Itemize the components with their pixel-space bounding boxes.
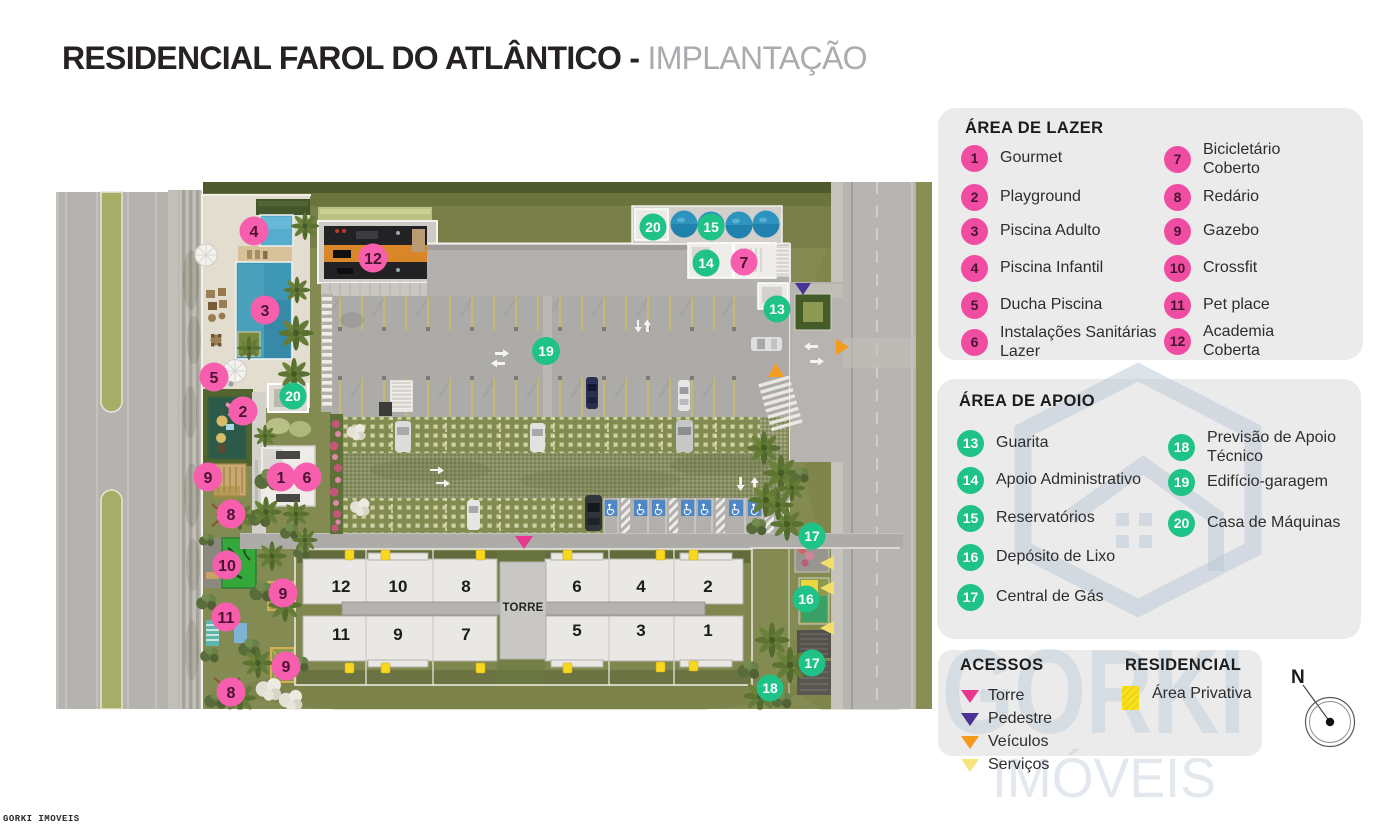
svg-text:10: 10 (389, 577, 408, 596)
svg-text:9: 9 (282, 659, 291, 676)
svg-text:3: 3 (261, 303, 270, 320)
svg-text:11: 11 (332, 625, 350, 644)
svg-text:6: 6 (303, 470, 312, 487)
svg-text:8: 8 (461, 577, 470, 596)
svg-text:2: 2 (239, 404, 248, 421)
svg-text:10: 10 (218, 558, 236, 575)
svg-text:14: 14 (698, 255, 714, 271)
svg-text:16: 16 (798, 591, 814, 607)
svg-text:12: 12 (332, 577, 351, 596)
svg-text:9: 9 (279, 586, 288, 603)
svg-text:2: 2 (703, 577, 712, 596)
svg-text:11: 11 (218, 610, 235, 627)
svg-text:N: N (1291, 667, 1305, 688)
svg-text:7: 7 (461, 625, 470, 644)
svg-text:17: 17 (804, 655, 820, 671)
svg-text:17: 17 (804, 528, 820, 544)
svg-text:1: 1 (277, 470, 286, 487)
svg-text:20: 20 (285, 388, 301, 404)
svg-text:6: 6 (572, 577, 581, 596)
svg-text:8: 8 (227, 685, 236, 702)
svg-text:20: 20 (645, 219, 661, 235)
svg-text:TORRE: TORRE (502, 602, 543, 614)
svg-text:1: 1 (703, 621, 712, 640)
svg-text:IMÓVEIS: IMÓVEIS (992, 746, 1216, 805)
svg-text:4: 4 (636, 577, 646, 596)
svg-text:19: 19 (538, 343, 554, 359)
svg-text:8: 8 (227, 507, 236, 524)
svg-text:5: 5 (210, 370, 219, 387)
svg-text:5: 5 (572, 621, 581, 640)
svg-text:18: 18 (762, 680, 778, 696)
svg-text:3: 3 (636, 621, 645, 640)
svg-text:7: 7 (740, 255, 749, 272)
svg-text:15: 15 (703, 219, 719, 235)
svg-text:4: 4 (250, 224, 259, 241)
svg-text:9: 9 (204, 470, 213, 487)
svg-text:13: 13 (769, 301, 785, 317)
svg-text:9: 9 (393, 625, 402, 644)
svg-text:12: 12 (364, 251, 382, 268)
